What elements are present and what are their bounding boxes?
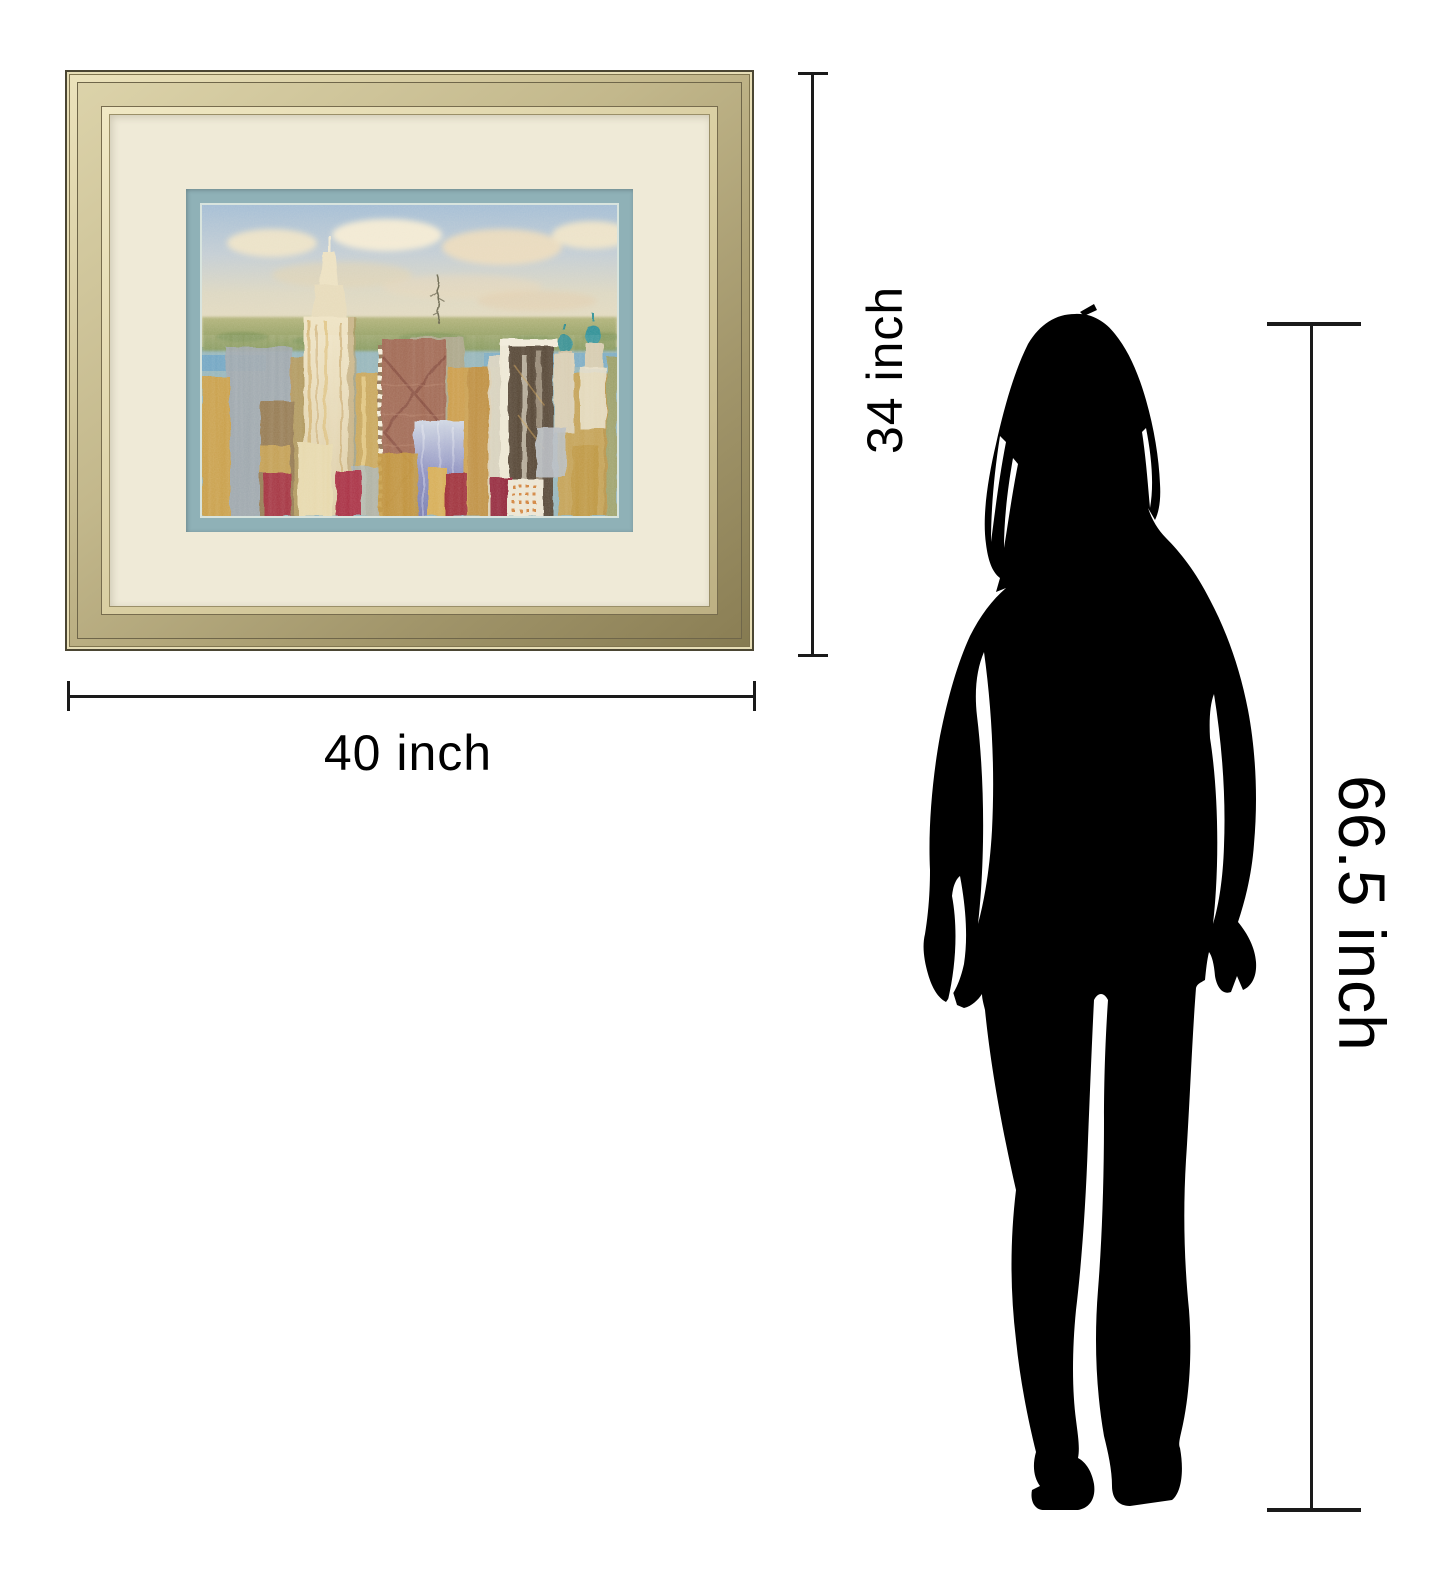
height-dimension-line [811,72,814,657]
woman-silhouette [900,300,1270,1520]
height-dimension-top-tick [798,72,828,75]
frame-inner-lip [101,106,718,615]
framed-artwork [65,70,754,651]
cityscape-painting [202,205,617,516]
width-dimension-right-tick [753,681,756,711]
person-height-bottom-tick [1267,1508,1361,1512]
width-dimension-line [67,695,756,698]
inner-mat [186,189,633,532]
person-height-dimension-label: 66.5 inch [1322,758,1402,1068]
frame-molding [77,82,742,639]
height-dimension-bottom-tick [798,654,828,657]
person-height-dimension-line [1310,322,1313,1512]
width-dimension-left-tick [67,681,70,711]
mat-board [109,114,710,607]
person-height-top-tick [1267,322,1361,326]
painting-keyline [200,203,619,518]
hair-tuft [1080,304,1097,316]
canvas-grain-texture [202,205,617,516]
width-dimension-label: 40 inch [303,718,513,788]
size-guide-diagram: 34 inch 40 inch 66.5 inch [0,0,1445,1588]
